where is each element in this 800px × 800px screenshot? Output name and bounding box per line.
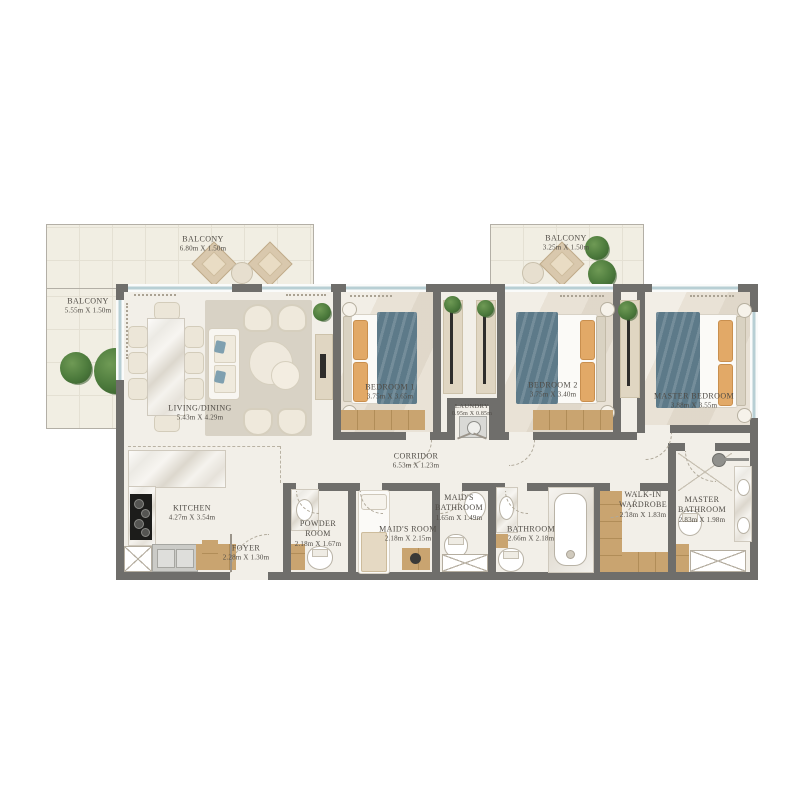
room-name: BATHROOM [501, 524, 561, 534]
room-name: LIVING/DINING [168, 403, 231, 413]
window [346, 284, 426, 292]
room-dims: 2.18m X 1.67m [287, 540, 349, 549]
room-name: LAUNDRY [450, 403, 494, 411]
balcony-table [231, 262, 253, 284]
room-label-master-bathroom: MASTER BATHROOM 2.83m X 1.98m [671, 495, 733, 525]
wall [488, 483, 496, 572]
wall [116, 572, 758, 580]
room-name: BALCONY [543, 233, 590, 243]
room-label-balcony-top: BALCONY 6.80m X 1.50m [180, 234, 227, 253]
balcony-table [522, 262, 544, 284]
room-label-living-dining: LIVING/DINING 5.43m X 4.29m [168, 403, 231, 422]
wardrobe [622, 552, 668, 572]
dining-chair [128, 378, 148, 400]
bed-headboard [596, 316, 606, 402]
room-dims: 2.18m X 2.15m [377, 535, 439, 544]
room-dims: 3.75m X 3.65m [365, 393, 415, 402]
shower-tray [442, 554, 488, 572]
curtain [690, 295, 734, 297]
toilet [307, 546, 333, 570]
kitchen-counter [128, 450, 226, 488]
wardrobe [533, 410, 613, 430]
room-name: KITCHEN [169, 503, 216, 513]
wall [333, 292, 341, 440]
room-name: BALCONY [52, 296, 124, 306]
room-label-bedroom-2: BEDROOM 2 3.75m X 3.40m [528, 380, 578, 399]
room-label-corridor: CORRIDOR 6.53m X 1.23m [393, 451, 440, 470]
room-label-powder-room: POWDER ROOM 2.18m X 1.67m [287, 519, 349, 549]
sofa [208, 328, 240, 400]
room-name: MAID'S BATHROOM [431, 493, 487, 514]
dining-chair [184, 326, 204, 348]
dining-chair [184, 378, 204, 400]
armchair [277, 408, 307, 436]
room-label-bathroom: BATHROOM 2.66m X 2.18m [501, 524, 561, 543]
wall [715, 443, 750, 451]
room-label-balcony-right: BALCONY 3.25m X 1.50m [543, 233, 590, 252]
room-label-bedroom-1: BEDROOM 1 3.75m X 3.65m [365, 382, 415, 401]
radio-icon [410, 553, 421, 564]
bed-pillow [580, 362, 595, 402]
wall [497, 292, 505, 440]
wardrobe-bench [443, 300, 463, 394]
bed-pillow [580, 320, 595, 360]
dining-chair [128, 326, 148, 348]
sink [737, 517, 750, 534]
room-name: FOYER [223, 543, 270, 553]
room-label-walk-in-wardrobe: WALK-IN WARDROBE 2.18m X 1.83m [614, 490, 672, 520]
dining-table [147, 318, 185, 416]
window [128, 284, 232, 292]
room-dims: 2.66m X 2.18m [501, 535, 561, 544]
wall [670, 425, 758, 433]
appliance-space [124, 546, 152, 572]
entry-opening [230, 572, 268, 580]
bathtub-drain [566, 550, 575, 559]
plant [313, 303, 331, 321]
sink [737, 479, 750, 496]
armchair [243, 304, 273, 332]
room-dims: 5.55m X 1.50m [52, 307, 124, 316]
foyer-cabinet [202, 540, 218, 570]
room-label-foyer: FOYER 2.28m X 1.30m [223, 543, 270, 562]
wall [637, 425, 645, 433]
plant [477, 300, 494, 317]
room-dims: 5.43m X 4.29m [168, 414, 231, 423]
bed-pillow [718, 320, 733, 362]
room-dims: 2.18m X 1.83m [614, 511, 672, 520]
wardrobe-rail [450, 308, 453, 384]
coffee-table [271, 361, 300, 390]
room-dims: 3.88m X 3.55m [639, 402, 749, 411]
window [652, 284, 738, 292]
nightstand-lamp [737, 303, 752, 318]
room-dims: 4.27m X 3.54m [169, 514, 216, 523]
window [505, 284, 613, 292]
room-name: MASTER BATHROOM [671, 495, 733, 516]
toilet [498, 548, 524, 572]
room-label-maids-bathroom: MAID'S BATHROOM 1.65m X 1.49m [431, 493, 487, 523]
wall [348, 483, 356, 572]
room-label-balcony-left: BALCONY 5.55m X 1.50m [52, 296, 124, 315]
room-label-laundry: LAUNDRY 0.95m X 0.85m [450, 403, 494, 419]
room-name: BEDROOM 2 [528, 380, 578, 390]
room-dims: 6.80m X 1.50m [180, 245, 227, 254]
room-dims: 6.53m X 1.23m [393, 462, 440, 471]
wardrobe [341, 410, 425, 430]
shower-tray [690, 550, 746, 572]
room-name: BALCONY [180, 234, 227, 244]
cooktop [130, 494, 152, 540]
nightstand-lamp [600, 302, 615, 317]
open-kitchen-boundary [280, 446, 281, 483]
room-label-kitchen: KITCHEN 4.27m X 3.54m [169, 503, 216, 522]
room-dims: 2.28m X 1.30m [223, 554, 270, 563]
nightstand-lamp [342, 302, 357, 317]
room-dims: 3.25m X 1.50m [543, 244, 590, 253]
room-name: CORRIDOR [393, 451, 440, 461]
wardrobe-rail [483, 308, 486, 384]
curtain [134, 294, 176, 296]
floor-plan: BALCONY 6.80m X 1.50m BALCONY 5.55m X 1.… [0, 0, 800, 800]
armchair [277, 304, 307, 332]
room-label-maids-room: MAID'S ROOM 2.18m X 2.15m [377, 524, 439, 543]
room-name: MASTER BEDROOM [639, 391, 749, 401]
curtain [560, 295, 604, 297]
armchair [243, 408, 273, 436]
wall [533, 432, 637, 440]
kitchen-sink [152, 544, 198, 572]
bed-pillow [353, 320, 368, 360]
wall [333, 432, 406, 440]
room-label-master-bedroom: MASTER BEDROOM 3.88m X 3.55m [639, 391, 749, 410]
console-decor [320, 354, 326, 378]
room-name: BEDROOM 1 [365, 382, 415, 392]
dining-chair [128, 352, 148, 374]
room-dims: 2.83m X 1.98m [671, 516, 733, 525]
room-dims: 3.75m X 3.40m [528, 391, 578, 400]
wall [433, 292, 441, 440]
curtain [350, 295, 392, 297]
dining-chair [184, 352, 204, 374]
plant [618, 301, 637, 320]
cabinet [676, 544, 689, 572]
room-dims: 1.65m X 1.49m [431, 514, 487, 523]
plant [444, 296, 461, 313]
window [262, 284, 331, 292]
room-name: WALK-IN WARDROBE [614, 490, 672, 511]
window [750, 312, 758, 418]
room-name: MAID'S ROOM [377, 524, 439, 534]
room-name: POWDER ROOM [287, 519, 349, 540]
room-dims: 0.95m X 0.85m [450, 411, 494, 419]
plant [60, 352, 92, 384]
open-kitchen-boundary [128, 446, 280, 447]
curtain [286, 294, 326, 296]
shower-arm-icon [723, 458, 749, 461]
